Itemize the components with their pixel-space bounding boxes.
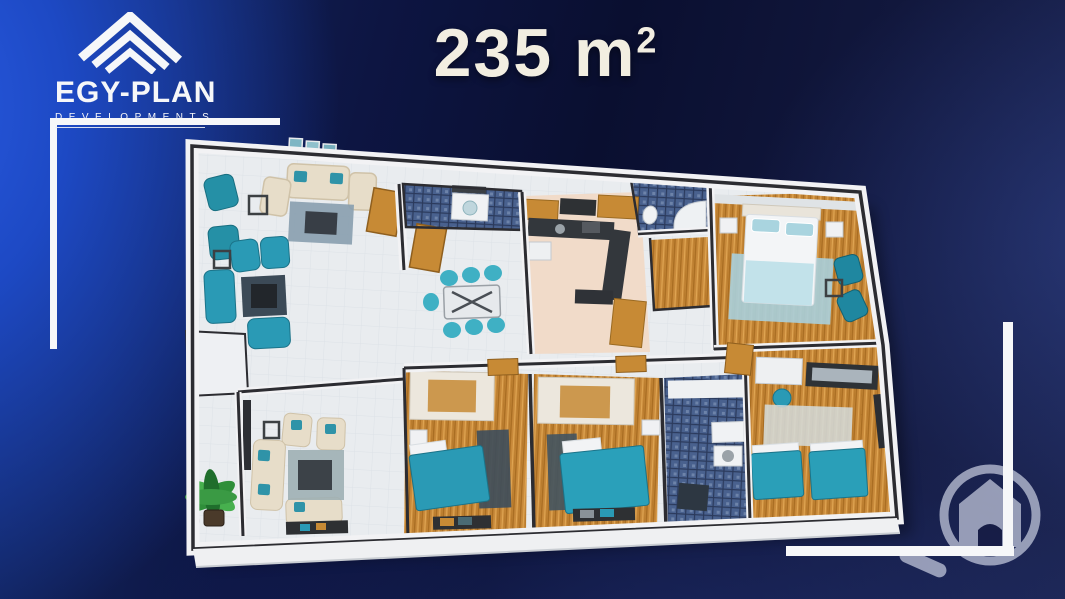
area-title: 235 m2: [405, 14, 685, 92]
double-bed: [738, 204, 821, 306]
single-bed: [808, 440, 868, 500]
bathroom-top-fixtures: [451, 185, 488, 221]
logo: EGY-PLAN DEVELOPMENTS: [55, 12, 205, 128]
kitchen-cabinet: [523, 199, 558, 221]
frame-left-vertical: [50, 118, 57, 349]
brand-subtitle: DEVELOPMENTS: [55, 112, 205, 123]
coffee-table: [298, 460, 332, 490]
single-bed: [750, 442, 804, 499]
wood-door: [616, 355, 647, 372]
kitchen-cabinet: [597, 195, 638, 219]
wood-door: [488, 358, 519, 375]
nightstand: [720, 218, 737, 233]
nightstand: [642, 420, 660, 435]
desk-chair: [773, 389, 791, 407]
room-entrance-foyer: [650, 237, 711, 310]
oven: [529, 242, 551, 260]
shower-mat: [677, 483, 709, 512]
frame-right-horizontal: [786, 546, 1014, 556]
coffee-table: [304, 211, 337, 235]
area-unit: m: [574, 15, 636, 91]
area-value: 235: [434, 15, 553, 91]
desk: [756, 357, 803, 385]
sink: [712, 421, 745, 442]
frame-right-vertical: [1003, 322, 1013, 556]
floor-plan: [185, 138, 911, 567]
area-exponent: 2: [636, 19, 656, 60]
bedroom-rug: [763, 404, 852, 447]
beige-sofa: [250, 439, 286, 511]
kitchen-hood: [560, 198, 597, 216]
tv-panel: [243, 400, 251, 470]
triple-chevron-roof-icon: [75, 12, 185, 74]
brand-name: EGY-PLAN: [55, 76, 205, 110]
hall-console: [575, 289, 613, 304]
wood-door: [725, 343, 754, 376]
wood-cabinet: [610, 298, 647, 347]
nightstand: [826, 222, 843, 237]
house-watermark-icon: [897, 469, 1036, 580]
poster: EGY-PLAN DEVELOPMENTS 235 m2: [0, 0, 1065, 599]
brand-underline: [55, 127, 205, 128]
